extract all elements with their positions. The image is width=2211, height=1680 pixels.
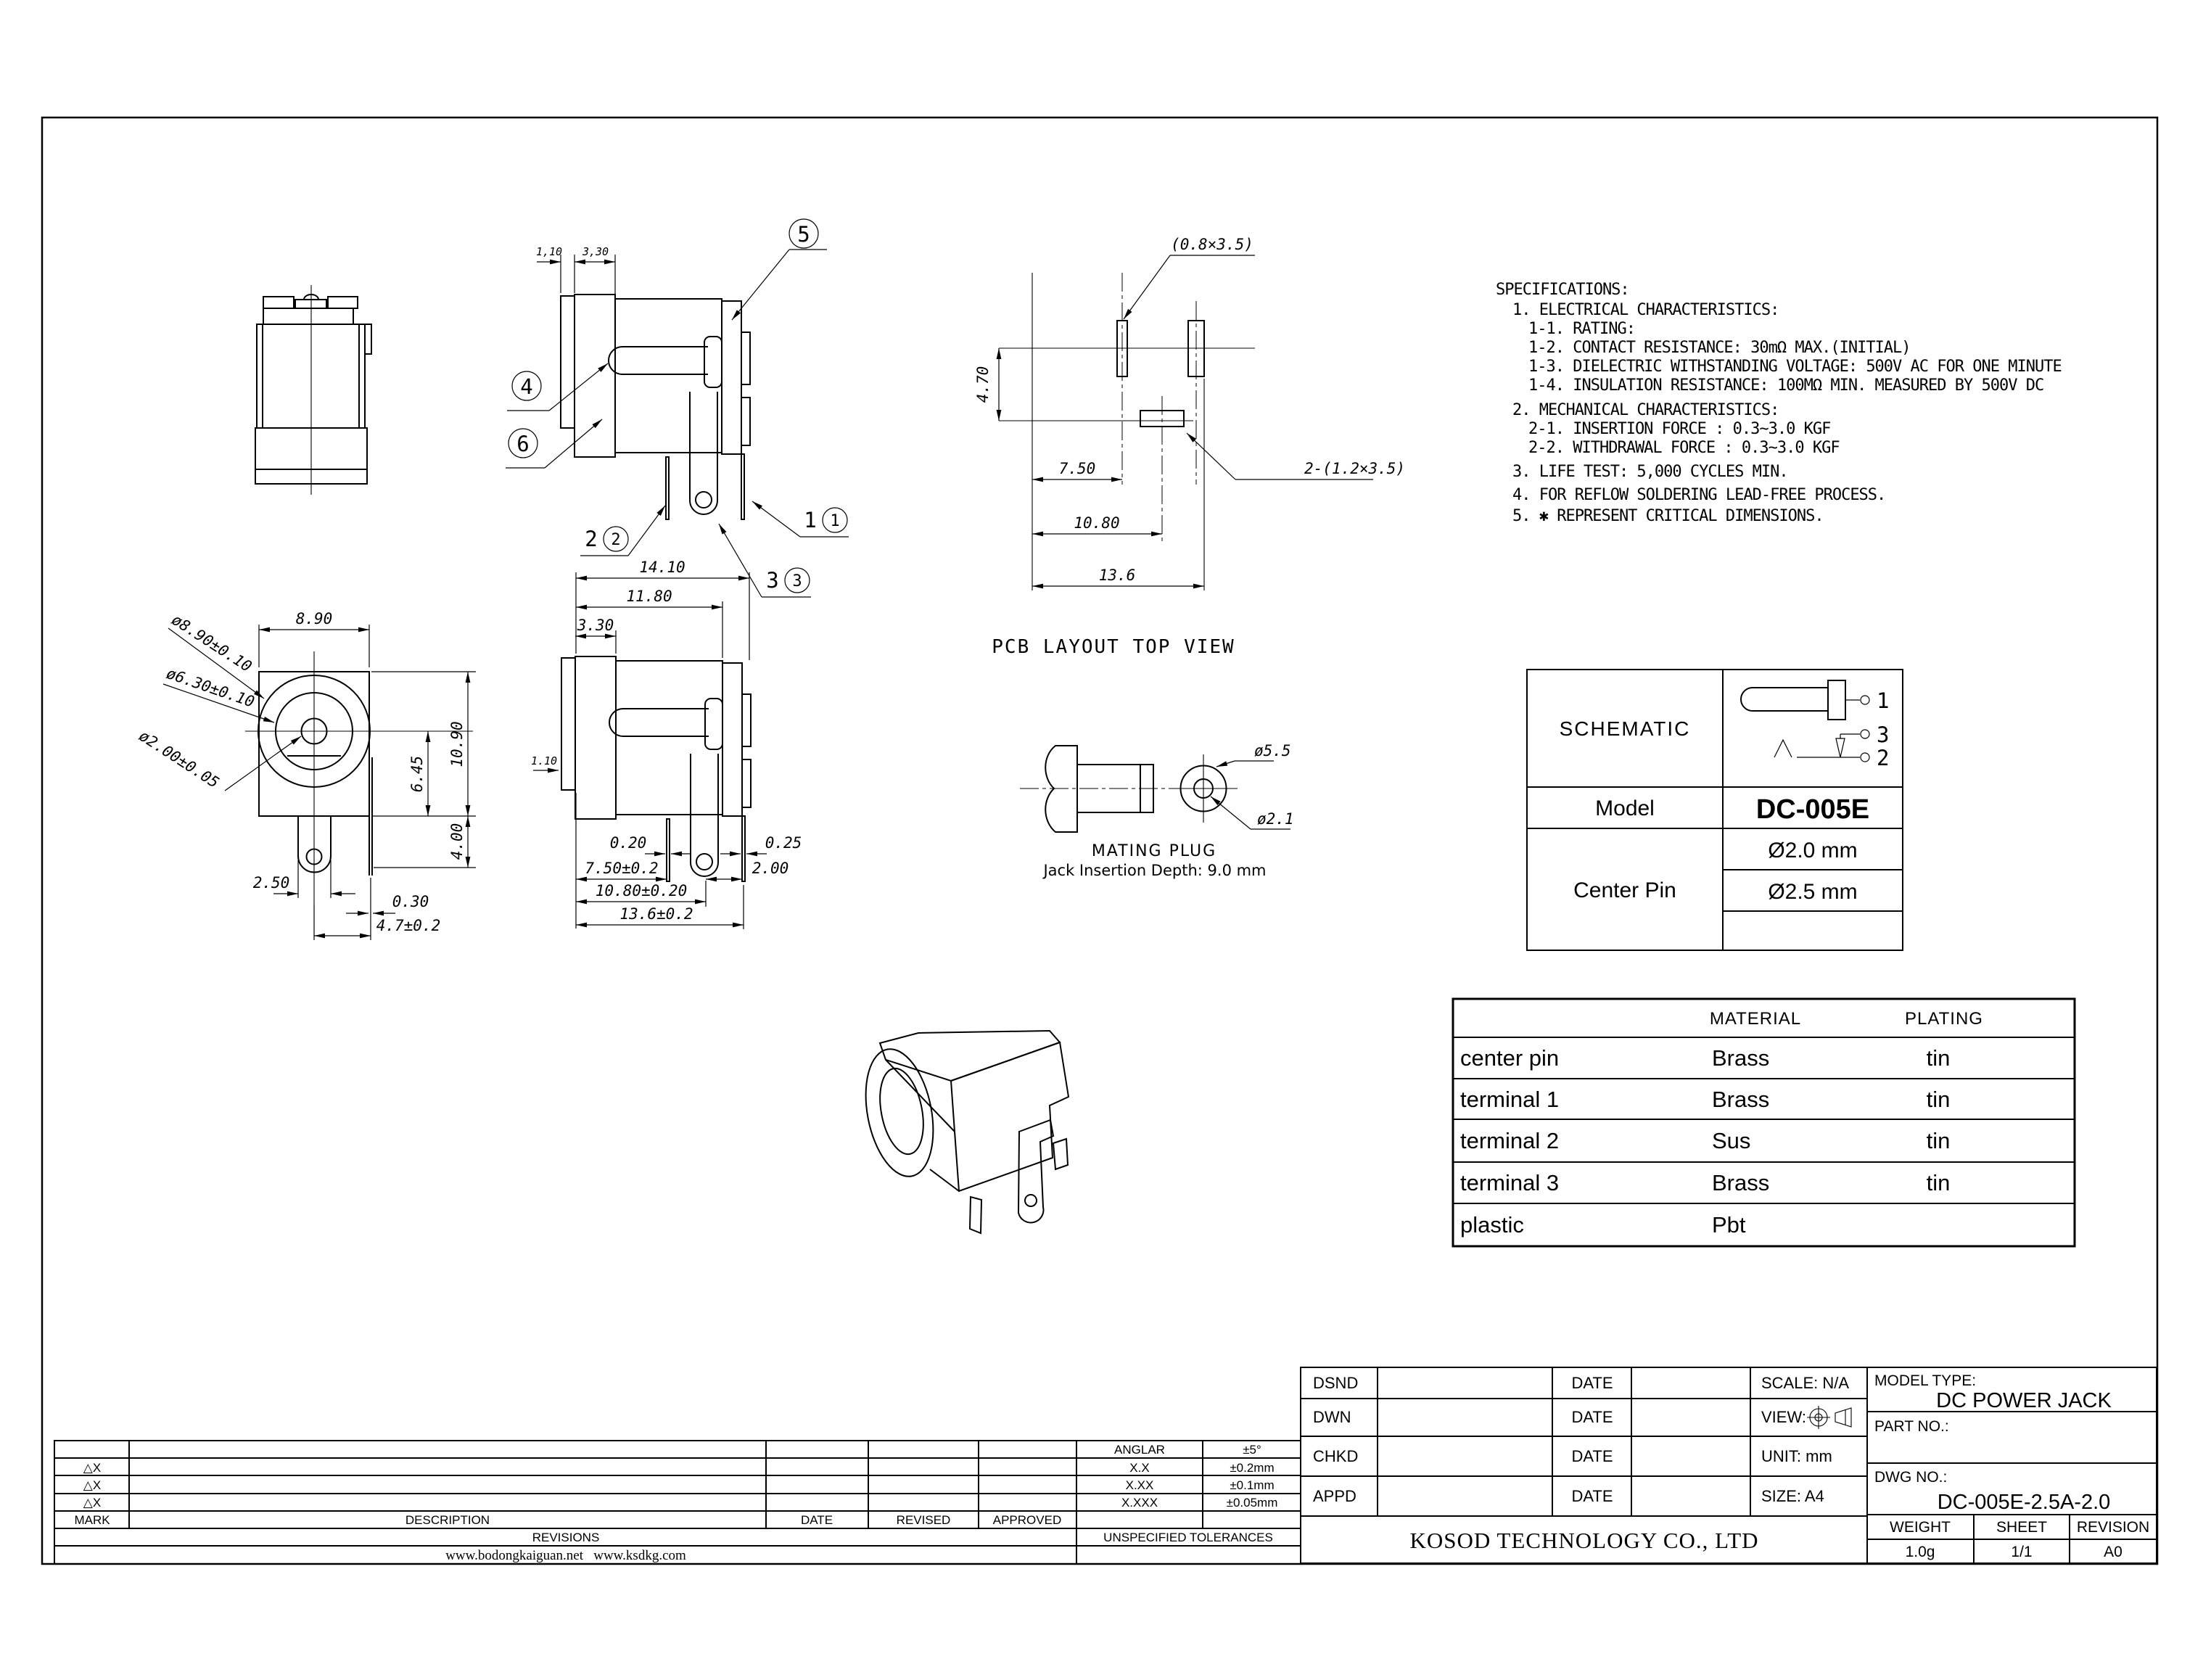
front-dim-width: 8.90 — [296, 610, 333, 627]
rear-tab-left — [263, 297, 294, 308]
dwg-no-value: DC-005E-2.5A-2.0 — [1938, 1491, 2111, 1514]
front-dim-leg-t: 0.30 — [392, 893, 429, 910]
schematic-graphic: 1 3 2 — [1741, 680, 1889, 770]
rear-top-block — [263, 308, 353, 324]
isometric-view — [856, 1031, 1069, 1233]
side-dim-leg1-t: 0.20 — [610, 834, 647, 852]
plug-dim-inner: ø2.1 — [1257, 810, 1294, 828]
plug-note: Jack Insertion Depth: 9.0 mm — [1042, 862, 1266, 879]
callout-2: 2 2 — [580, 506, 665, 556]
side-dim-leg2-t: 0.25 — [765, 834, 802, 852]
mark-symbol-3: △X — [83, 1496, 101, 1510]
rear-tab-right — [328, 297, 358, 308]
dwn-label: DWN — [1313, 1408, 1351, 1426]
date-label-4: DATE — [1571, 1487, 1613, 1505]
schematic-header: SCHEMATIC — [1560, 717, 1691, 740]
balloon-5-label: 5 — [797, 222, 810, 247]
mat-row2-plating: tin — [1927, 1128, 1951, 1153]
side-dim-body: 11.80 — [626, 588, 672, 605]
balloon-4: 4 — [507, 363, 608, 411]
pcb-dim-136: 13.6 — [1099, 567, 1136, 584]
front-dim-lug-w: 2.50 — [253, 874, 290, 892]
plug-dim-outer: ø5.5 — [1254, 742, 1291, 759]
pcb-slot-small-label: (0.8×3.5) — [1171, 236, 1253, 253]
front-dim-pin-dia: ø2.00±0.05 — [136, 727, 222, 791]
callout-1: 1 1 — [752, 501, 849, 537]
side-dim-overall-x: 13.6±0.2 — [619, 905, 693, 923]
spec-line-5: 1-4. INSULATION RESISTANCE: 100MΩ MIN. M… — [1528, 376, 2043, 395]
header-approved: APPROVED — [993, 1513, 1061, 1527]
callout-2-number: 2 — [585, 527, 597, 551]
callout-3-circled: 3 — [792, 572, 802, 590]
model-value: DC-005E — [1756, 794, 1869, 825]
pcb-dim-1080: 10.80 — [1074, 514, 1119, 532]
weight-value: 1.0g — [1906, 1544, 1935, 1560]
header-mark: MARK — [74, 1513, 110, 1527]
view-label: VIEW: — [1761, 1408, 1806, 1426]
mark-symbol-2: △X — [83, 1478, 101, 1492]
pcb-layout-view: (0.8×3.5) 2-(1.2×3.5) 4.70 7.50 10.80 13… — [974, 236, 1405, 658]
unit-value: UNIT: mm — [1761, 1447, 1832, 1465]
rear-side-tab — [365, 324, 371, 354]
iso-right-face — [951, 1042, 1069, 1191]
spec-line-4: 1-3. DIELECTRIC WITHSTANDING VOLTAGE: 50… — [1528, 358, 2062, 376]
pcb-dim-470: 4.70 — [974, 366, 992, 403]
mat-row4-part: plastic — [1460, 1212, 1524, 1238]
scale-value: SCALE: N/A — [1761, 1374, 1849, 1392]
balloon-4-label: 4 — [520, 374, 532, 399]
mat-row1-material: Brass — [1712, 1087, 1769, 1112]
tol-0-label: X.X — [1129, 1461, 1149, 1475]
tol-2-label: X.XXX — [1121, 1496, 1158, 1510]
iso-leg — [970, 1197, 981, 1233]
balloon-6-label: 6 — [516, 432, 529, 456]
balloon-5: 5 — [732, 219, 827, 320]
mat-row1-plating: tin — [1927, 1087, 1951, 1112]
rear-view — [255, 285, 371, 495]
spec-line-8: 2-2. WITHDRAWAL FORCE : 0.3~3.0 KGF — [1528, 439, 1840, 457]
mat-row2-part: terminal 2 — [1460, 1128, 1559, 1153]
iso-body-bottom — [930, 1169, 959, 1191]
center-pin-d2: Ø2.5 mm — [1768, 880, 1857, 904]
dim-flange-thickness: 1,10 — [536, 245, 562, 258]
mat-row2-material: Sus — [1712, 1128, 1750, 1153]
schematic-table: SCHEMATIC Model DC-005E Center Pin Ø2.0 … — [1527, 670, 1903, 950]
specifications: SPECIFICATIONS: 1. ELECTRICAL CHARACTERI… — [1496, 281, 2062, 525]
drawing-sheet: 1,10 3,30 5 4 6 2 2 1 1 3 3 — [0, 0, 2211, 1680]
spec-line-10: 4. FOR REFLOW SOLDERING LEAD-FREE PROCES… — [1512, 486, 1885, 504]
schematic-pin-2: 2 — [1877, 746, 1889, 770]
side-dim-front: 3.30 — [577, 617, 614, 634]
material-col-header: MATERIAL — [1710, 1009, 1801, 1029]
dsnd-label: DSND — [1313, 1374, 1358, 1392]
appd-label: APPD — [1313, 1487, 1356, 1505]
chkd-label: CHKD — [1313, 1447, 1358, 1465]
material-table: MATERIAL PLATING center pin Brass tin te… — [1453, 999, 2075, 1246]
pcb-dim-750: 7.50 — [1059, 460, 1096, 477]
tol-1-label: X.XX — [1126, 1478, 1154, 1492]
revision-value: A0 — [2104, 1544, 2123, 1560]
front-dim-lug-h: 4.00 — [448, 823, 466, 860]
unspecified-tolerances-label: UNSPECIFIED TOLERANCES — [1103, 1531, 1273, 1544]
side-dim-bracket-x: 10.80±0.20 — [596, 882, 687, 899]
weight-label: WEIGHT — [1890, 1519, 1951, 1536]
mat-row1-part: terminal 1 — [1460, 1087, 1559, 1112]
websites: www.bodongkaiguan.net www.ksdkg.com — [445, 1548, 686, 1563]
spec-line-9: 3. LIFE TEST: 5,000 CYCLES MIN. — [1512, 463, 1788, 481]
anglar-label: ANGLAR — [1114, 1443, 1165, 1457]
balloon-6: 6 — [506, 419, 602, 468]
spec-line-2: 1-1. RATING: — [1528, 320, 1635, 338]
dwg-no-label: DWG NO.: — [1874, 1469, 1947, 1486]
side-dim-overall: 14.10 — [639, 559, 685, 576]
mark-symbol-1: △X — [83, 1461, 101, 1475]
revision-label: REVISION — [2077, 1519, 2149, 1536]
tol-2-value: ±0.05mm — [1227, 1496, 1278, 1510]
center-pin-d1: Ø2.0 mm — [1768, 839, 1857, 862]
date-label-1: DATE — [1571, 1374, 1613, 1392]
sheet-value: 1/1 — [2011, 1544, 2032, 1560]
projection-symbol — [1807, 1406, 1851, 1429]
date-label-2: DATE — [1571, 1408, 1613, 1426]
anglar-value: ±5° — [1243, 1443, 1261, 1457]
drawing-sheet-svg: 1,10 3,30 5 4 6 2 2 1 1 3 3 — [0, 0, 2211, 1680]
spec-line-6: 2. MECHANICAL CHARACTERISTICS: — [1512, 401, 1779, 419]
spec-line-7: 2-1. INSERTION FORCE : 0.3~3.0 KGF — [1528, 420, 1830, 438]
sheet-label: SHEET — [1996, 1519, 2047, 1536]
mat-row0-material: Brass — [1712, 1045, 1769, 1071]
front-dim-outer-dia: ø8.90±0.10 — [168, 611, 255, 675]
schematic-pin-1: 1 — [1877, 688, 1889, 713]
title-block: DSND DWN CHKD APPD DATE DATE DATE DATE S… — [1301, 1367, 2157, 1563]
mating-plug-view: ø5.5 ø2.1 MATING PLUG Jack Insertion Dep… — [1020, 742, 1294, 879]
front-dim-height: 10.90 — [448, 721, 466, 767]
model-type-value: DC POWER JACK — [1936, 1389, 2112, 1412]
plating-col-header: PLATING — [1905, 1009, 1983, 1029]
spec-line-0: SPECIFICATIONS: — [1496, 281, 1629, 299]
callout-1-circled: 1 — [830, 512, 839, 530]
tol-0-value: ±0.2mm — [1230, 1461, 1274, 1475]
spec-line-3: 1-2. CONTACT RESISTANCE: 30mΩ MAX.(INITI… — [1528, 339, 1911, 357]
callout-2-circled: 2 — [611, 531, 620, 549]
tol-1-value: ±0.1mm — [1230, 1478, 1274, 1492]
plug-caption: MATING PLUG — [1092, 842, 1216, 860]
header-description: DESCRIPTION — [405, 1513, 490, 1527]
header-date: DATE — [801, 1513, 833, 1527]
schematic-pin-3: 3 — [1877, 722, 1889, 747]
mat-row0-plating: tin — [1927, 1045, 1951, 1071]
spec-line-1: 1. ELECTRICAL CHARACTERISTICS: — [1512, 301, 1779, 319]
model-label: Model — [1595, 796, 1655, 820]
callout-1-number: 1 — [804, 508, 816, 532]
spec-line-11: 5. ✱ REPRESENT CRITICAL DIMENSIONS. — [1512, 507, 1824, 525]
mat-row3-material: Brass — [1712, 1170, 1769, 1195]
revisions-table: ANGLAR ±5° △X X.X ±0.2mm △X X.XX ±0.1mm … — [54, 1441, 1301, 1564]
callout-3-number: 3 — [766, 568, 778, 593]
front-dim-center-h: 6.45 — [408, 756, 426, 793]
side-dim-leg1-x: 7.50±0.2 — [585, 860, 658, 877]
side-view-dimensioned: 14.10 11.80 3.30 1.10 0.20 0.25 7.50±0.2… — [531, 559, 802, 929]
side-dim-leg2-gap: 2.00 — [752, 860, 789, 877]
mat-row3-part: terminal 3 — [1460, 1170, 1559, 1195]
front-view: 8.90 ø8.90±0.10 ø6.30±0.10 ø2.00±0.05 10… — [136, 610, 476, 940]
pcb-slot-center-label: 2-(1.2×3.5) — [1304, 460, 1405, 477]
iso-bracket — [1018, 1120, 1053, 1222]
date-label-3: DATE — [1571, 1447, 1613, 1465]
mat-row3-plating: tin — [1927, 1170, 1951, 1195]
side-dim-flange: 1.10 — [531, 754, 557, 767]
part-no-label: PART NO.: — [1874, 1418, 1949, 1435]
company-name: KOSOD TECHNOLOGY CO., LTD — [1409, 1528, 1758, 1553]
mat-row4-material: Pbt — [1712, 1212, 1746, 1238]
iso-stub — [1053, 1139, 1068, 1169]
dim-body-thickness: 3,30 — [582, 245, 609, 258]
header-revised: REVISED — [897, 1513, 951, 1527]
front-dim-leg-off: 4.7±0.2 — [376, 917, 441, 934]
mat-row0-part: center pin — [1460, 1045, 1559, 1071]
iso-bracket-hole — [1025, 1195, 1037, 1206]
side-view-balloons: 1,10 3,30 5 4 6 2 2 1 1 3 3 — [506, 219, 849, 597]
model-type-label: MODEL TYPE: — [1874, 1372, 1976, 1389]
pcb-caption: PCB LAYOUT TOP VIEW — [992, 636, 1235, 658]
revisions-label: REVISIONS — [532, 1531, 600, 1544]
center-pin-label: Center Pin — [1573, 878, 1676, 902]
size-value: SIZE: A4 — [1761, 1487, 1824, 1505]
dim-lines — [537, 255, 615, 296]
